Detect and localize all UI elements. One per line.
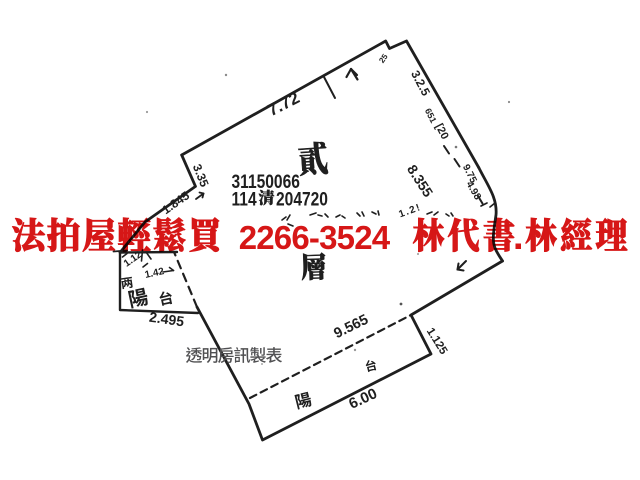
svg-text:2266-3524: 2266-3524 (239, 219, 391, 256)
svg-text:114: 114 (232, 188, 257, 210)
svg-text:204720: 204720 (276, 188, 328, 210)
